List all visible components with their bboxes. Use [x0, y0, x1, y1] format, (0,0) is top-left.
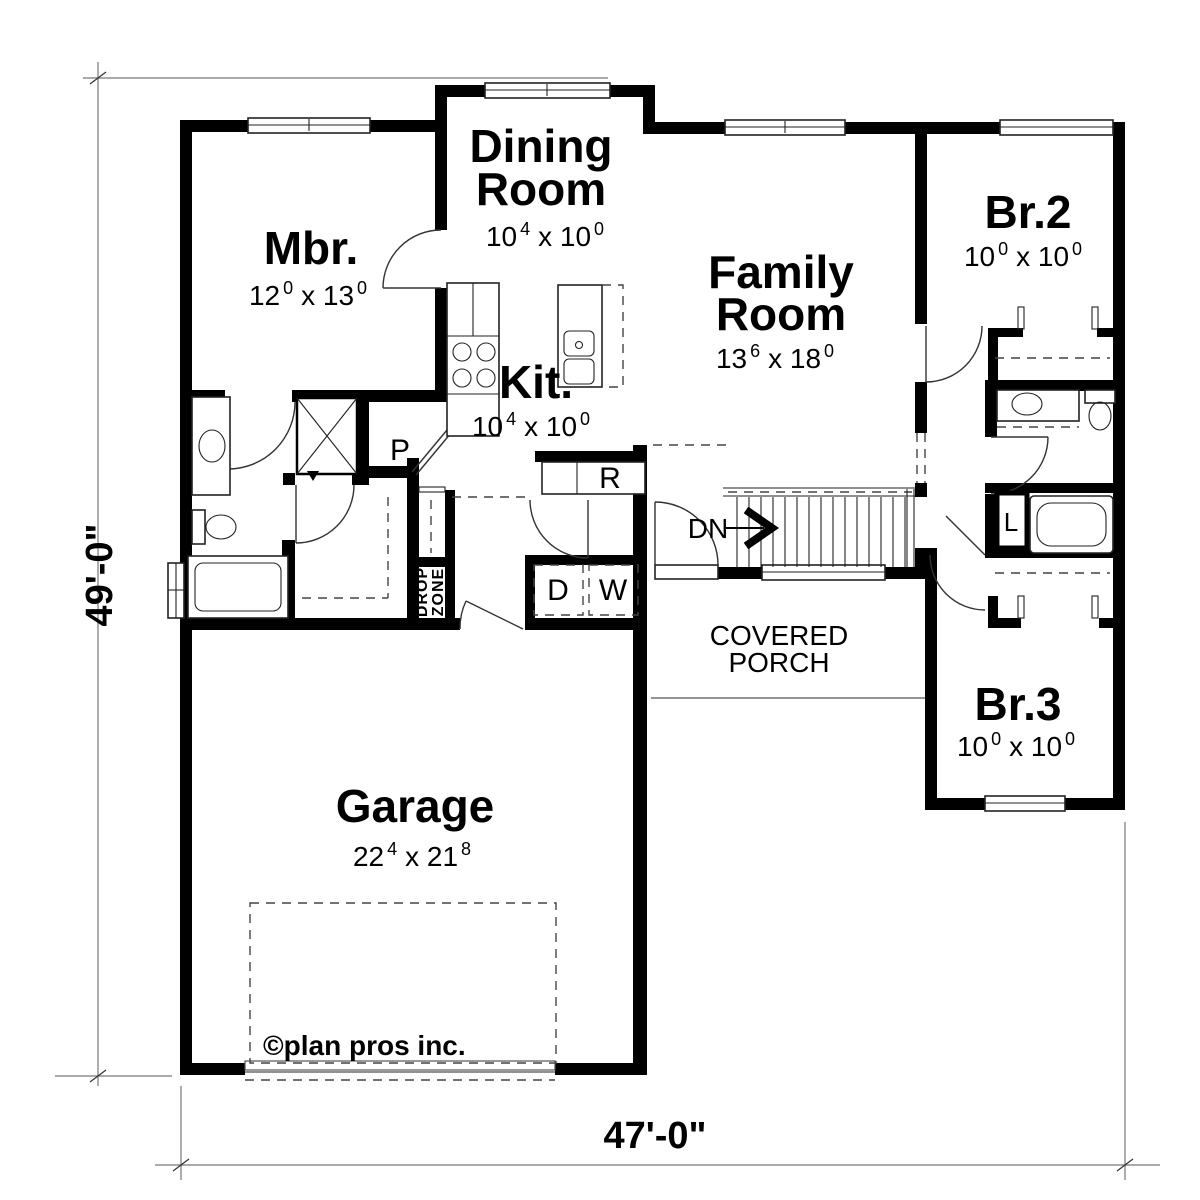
mbr-label: Mbr. [264, 222, 359, 274]
master-vanity-sink [192, 397, 230, 495]
stairs-down-label: DN [688, 513, 728, 544]
porch-label-2: PORCH [728, 647, 829, 678]
drop-zone-label: DROP ZONE [414, 567, 447, 617]
dining-label-2: Room [476, 163, 606, 215]
refrigerator [542, 462, 645, 494]
stairs-window [762, 565, 885, 580]
shared-bath-fixtures: L [997, 390, 1115, 553]
shower-icon [297, 398, 357, 481]
hall-entry-door [530, 500, 588, 558]
stairs-down-arrow-icon [726, 510, 772, 546]
left-dimension-label: 49'-0" [79, 523, 121, 626]
master-toilet-icon [192, 510, 236, 544]
bathtub [1030, 496, 1113, 553]
br2-window [1000, 120, 1113, 135]
kitchen-dims: 104x 100 [472, 409, 590, 442]
br2-door [926, 326, 982, 382]
br2-dims: 100x 100 [964, 239, 1082, 272]
linen-label: L [1004, 507, 1018, 537]
floor-plan-page: 49'-0" 47'-0" [0, 0, 1200, 1200]
hall-cased-opening [452, 433, 925, 497]
walk-in-closet-shelving [302, 497, 388, 598]
garage-dims: 224x 218 [353, 839, 471, 872]
pantry-label: P [390, 434, 410, 467]
br3-window [985, 796, 1065, 811]
garage-entry-door [460, 601, 523, 629]
family-window [725, 120, 845, 135]
dining-dims: 104x 100 [486, 219, 604, 252]
br3-door [930, 516, 985, 610]
mbr-door [383, 230, 441, 288]
mbr-window [248, 118, 370, 133]
garage-label: Garage [336, 780, 495, 832]
washer-label: W [599, 574, 628, 607]
master-bath-fixtures [188, 397, 388, 618]
bottom-dimension-label: 47'-0" [603, 1115, 706, 1157]
staircase: DN [688, 488, 915, 567]
shared-toilet-icon [1085, 390, 1115, 430]
dining-window [485, 83, 610, 98]
br3-closet [995, 573, 1110, 618]
shared-vanity-sink [997, 390, 1079, 427]
closets [995, 307, 1110, 618]
family-label-2: Room [716, 288, 846, 340]
mbr-dims: 120x 130 [249, 278, 367, 311]
svg-text:DROP: DROP [414, 567, 431, 617]
walk-in-closet-door [296, 485, 354, 543]
bath-side-window [168, 563, 184, 618]
br3-label: Br.3 [975, 678, 1062, 730]
dryer-label: D [547, 574, 569, 607]
refrigerator-label: R [599, 462, 621, 495]
svg-text:ZONE: ZONE [430, 568, 447, 616]
copyright-label: ©plan pros inc. [263, 1030, 466, 1061]
br2-label: Br.2 [985, 186, 1072, 238]
br3-dims: 100x 100 [957, 729, 1075, 762]
floor-plan-drawing: 49'-0" 47'-0" [0, 0, 1200, 1200]
master-tub [188, 556, 288, 618]
garage-elements: ©plan pros inc. [245, 903, 556, 1080]
family-dims: 136x 180 [716, 341, 834, 374]
master-bath-door [228, 402, 295, 469]
kitchen-label: Kit. [499, 356, 573, 408]
room-labels: Mbr. 120x 130 Dining Room 104x 100 Kit. … [249, 120, 1082, 872]
